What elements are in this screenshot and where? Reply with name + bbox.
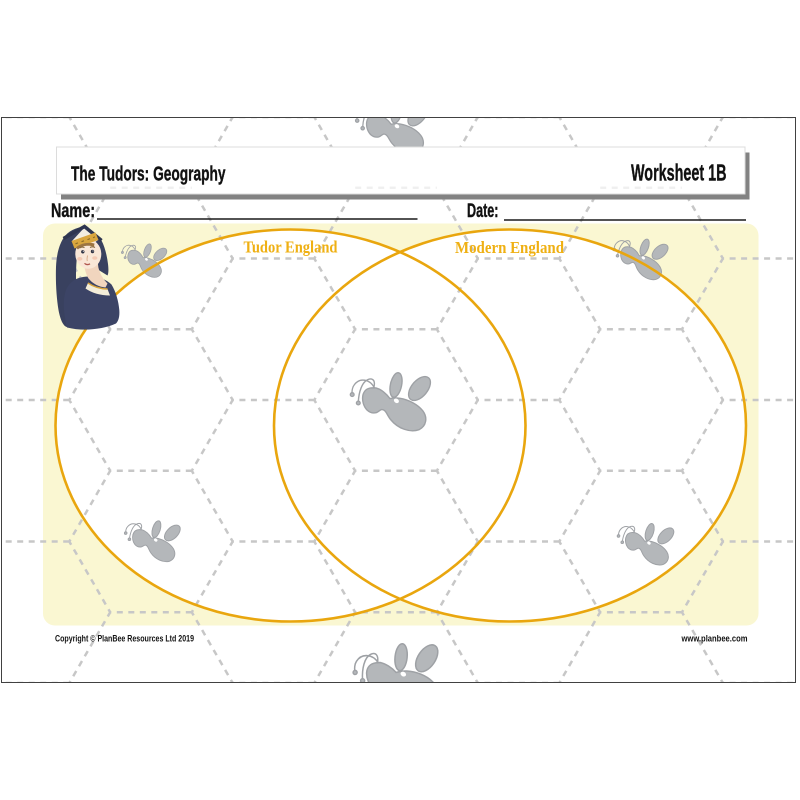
svg-text:The Tudors: Geography: The Tudors: Geography bbox=[71, 163, 226, 186]
svg-text:Tudor England: Tudor England bbox=[244, 238, 338, 257]
svg-text:Copyright © PlanBee Resources: Copyright © PlanBee Resources Ltd 2019 bbox=[55, 634, 194, 645]
svg-text:Name:: Name: bbox=[51, 201, 95, 222]
svg-text:Modern England: Modern England bbox=[455, 238, 564, 257]
svg-text:www.planbee.com: www.planbee.com bbox=[681, 634, 748, 645]
svg-text:Date:: Date: bbox=[467, 201, 499, 222]
svg-text:Worksheet 1B: Worksheet 1B bbox=[631, 160, 727, 186]
